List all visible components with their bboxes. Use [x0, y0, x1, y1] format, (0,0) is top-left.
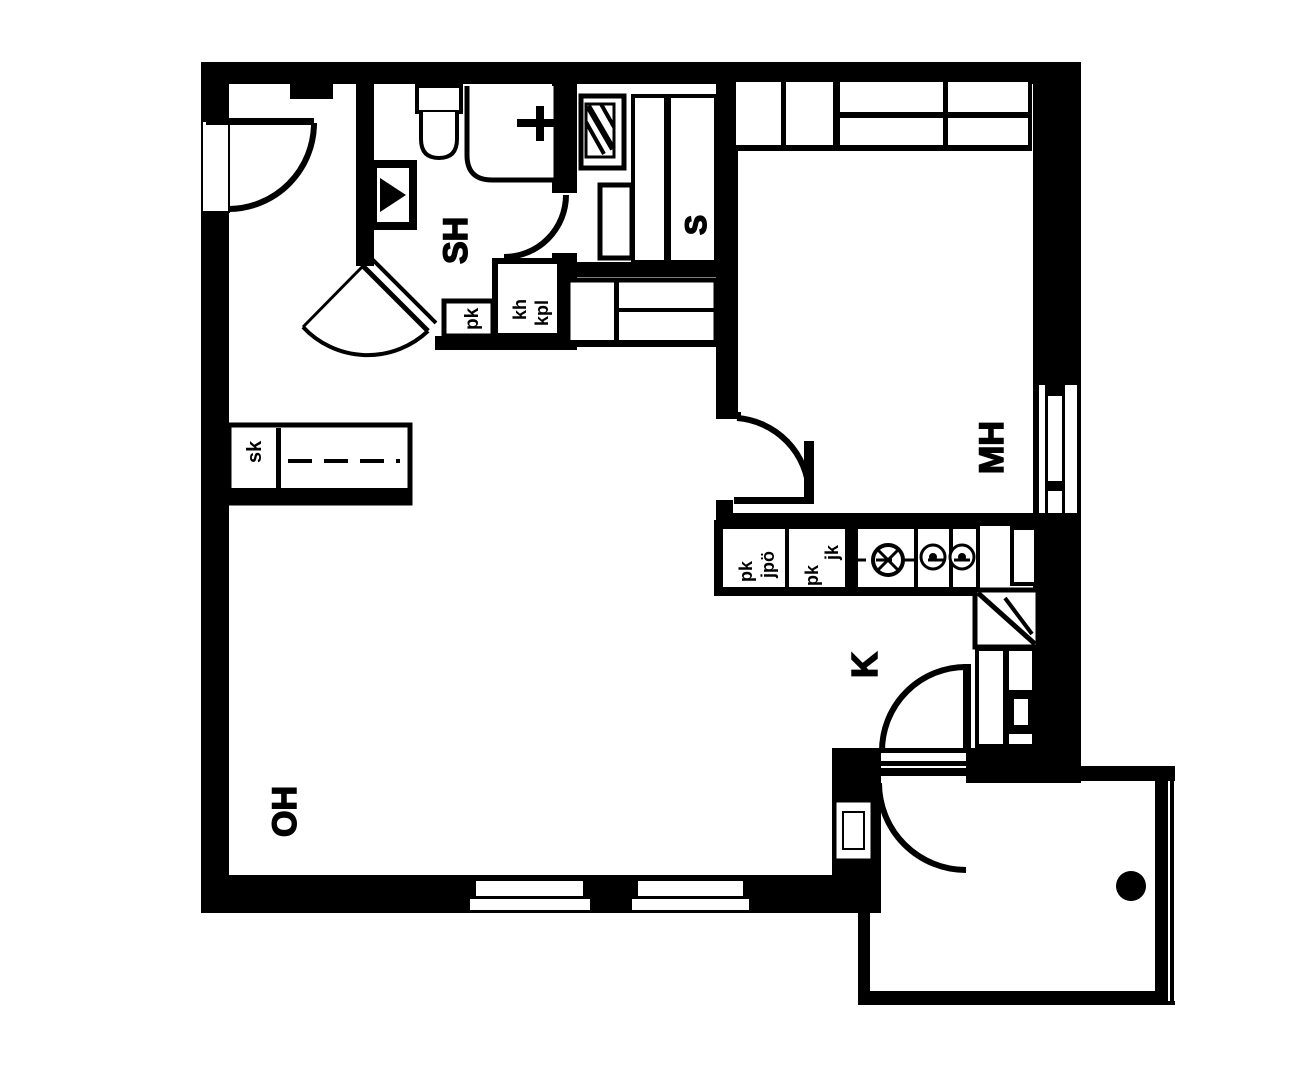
svg-text:S: S	[680, 215, 713, 235]
svg-text:kh: kh	[510, 299, 530, 320]
svg-text:sk: sk	[244, 440, 266, 463]
svg-text:kpl: kpl	[532, 300, 552, 326]
svg-text:jpö: jpö	[758, 551, 778, 579]
svg-text:jk: jk	[822, 544, 842, 561]
svg-text:pk: pk	[736, 560, 756, 582]
svg-text:K: K	[844, 652, 885, 678]
svg-text:pk: pk	[462, 307, 483, 330]
svg-text:MH: MH	[973, 421, 1011, 474]
svg-text:SH: SH	[437, 217, 475, 264]
svg-text:pk: pk	[802, 564, 822, 586]
svg-text:OH: OH	[266, 786, 304, 837]
